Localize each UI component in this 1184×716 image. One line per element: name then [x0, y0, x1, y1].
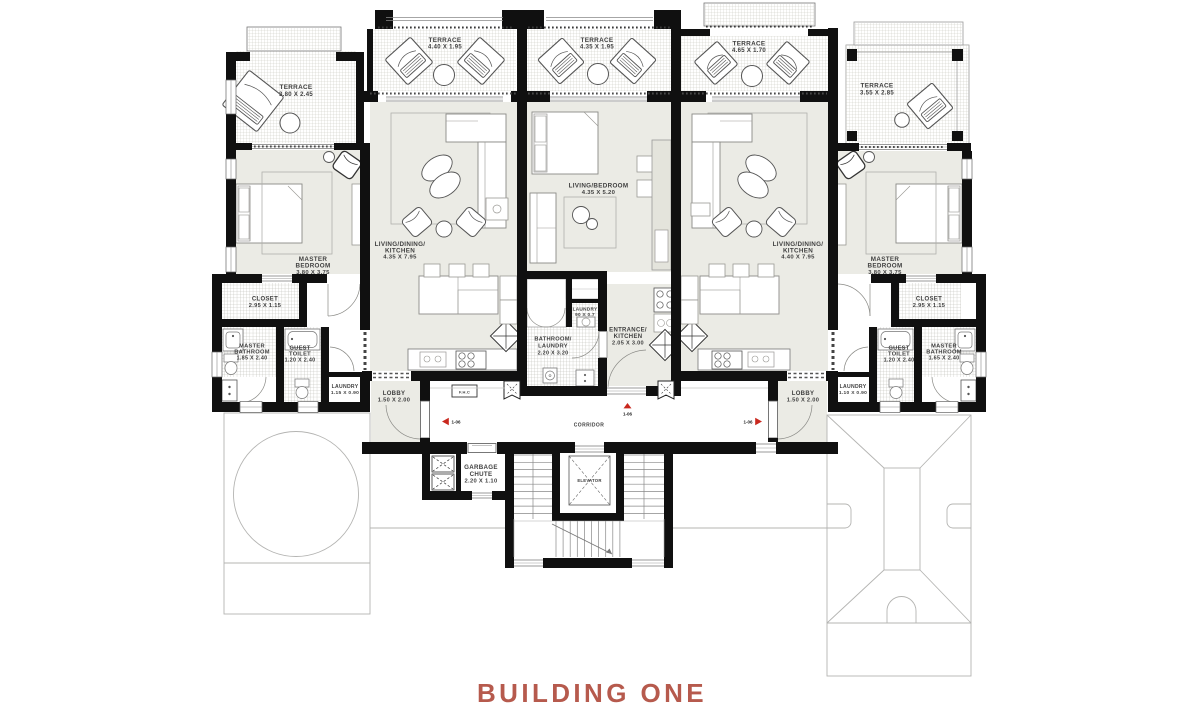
- svg-text:CORRIDOR: CORRIDOR: [574, 423, 604, 429]
- svg-text:1.50 X 2.00: 1.50 X 2.00: [787, 398, 819, 404]
- svg-text:4.35 X 7.95: 4.35 X 7.95: [383, 255, 417, 261]
- svg-text:F.H.C: F.H.C: [459, 390, 470, 395]
- svg-text:2.95 X 1.15: 2.95 X 1.15: [249, 303, 281, 309]
- svg-text:TERRACE: TERRACE: [429, 37, 462, 44]
- svg-text:4.40 X 7.95: 4.40 X 7.95: [781, 255, 815, 261]
- svg-text:2.20 X 3.20: 2.20 X 3.20: [538, 351, 569, 357]
- svg-text:KITCHEN: KITCHEN: [385, 247, 415, 254]
- svg-text:4.40 X 1.95: 4.40 X 1.95: [428, 45, 462, 51]
- svg-text:2.20 X 1.10: 2.20 X 1.10: [465, 479, 498, 485]
- svg-text:1.50 X 2.00: 1.50 X 2.00: [378, 398, 410, 404]
- svg-text:TERRACE: TERRACE: [733, 41, 766, 48]
- svg-text:CHUTE: CHUTE: [470, 471, 493, 478]
- svg-text:2.05 X 3.00: 2.05 X 3.00: [612, 341, 644, 347]
- svg-text:4.35 X 1.95: 4.35 X 1.95: [580, 45, 614, 51]
- svg-text:LAUNDRY: LAUNDRY: [840, 384, 867, 390]
- svg-text:1.10 X 0.90: 1.10 X 0.90: [839, 390, 867, 396]
- svg-text:LAUNDRY: LAUNDRY: [332, 384, 359, 390]
- svg-text:TERRACE: TERRACE: [581, 37, 614, 44]
- svg-text:TERRACE: TERRACE: [861, 83, 894, 90]
- svg-text:1.65 X 2.40: 1.65 X 2.40: [929, 356, 960, 362]
- svg-text:KITCHEN: KITCHEN: [614, 334, 643, 340]
- svg-text:90 X 0.7: 90 X 0.7: [575, 312, 595, 317]
- svg-text:3.80 X 3.75: 3.80 X 3.75: [868, 270, 902, 276]
- svg-text:KITCHEN: KITCHEN: [783, 247, 813, 254]
- svg-text:2.95 X 1.15: 2.95 X 1.15: [913, 303, 945, 309]
- svg-text:LAUNDRY: LAUNDRY: [573, 307, 598, 312]
- svg-text:LOBBY: LOBBY: [792, 391, 815, 397]
- svg-text:1-06: 1-06: [623, 412, 633, 417]
- svg-text:BEDROOM: BEDROOM: [296, 263, 331, 270]
- svg-text:CLOSET: CLOSET: [916, 297, 942, 303]
- svg-text:1-06: 1-06: [451, 420, 461, 425]
- svg-text:GARBAGE: GARBAGE: [464, 464, 498, 471]
- svg-text:BEDROOM: BEDROOM: [868, 263, 903, 270]
- svg-text:ELEVATOR: ELEVATOR: [577, 478, 602, 483]
- svg-text:LOBBY: LOBBY: [383, 391, 406, 397]
- svg-text:3.80 X 3.75: 3.80 X 3.75: [296, 270, 330, 276]
- svg-text:4.35 X 5.20: 4.35 X 5.20: [582, 190, 616, 196]
- svg-text:4.65 X 1.70: 4.65 X 1.70: [732, 48, 766, 54]
- svg-text:CLOSET: CLOSET: [252, 297, 278, 303]
- svg-text:BUILDING ONE: BUILDING ONE: [477, 678, 707, 708]
- svg-text:ENTRANCE/: ENTRANCE/: [609, 328, 647, 334]
- svg-text:LAUNDRY: LAUNDRY: [538, 344, 568, 350]
- svg-text:3.55 X 2.85: 3.55 X 2.85: [860, 91, 894, 97]
- svg-text:1-06: 1-06: [743, 420, 753, 425]
- svg-text:TERRACE: TERRACE: [280, 84, 313, 91]
- svg-text:LIVING/BEDROOM: LIVING/BEDROOM: [569, 183, 629, 190]
- svg-text:3.80 X 2.45: 3.80 X 2.45: [279, 92, 313, 98]
- svg-text:1.20 X 2.40: 1.20 X 2.40: [285, 358, 316, 364]
- svg-text:1.15 X 0.90: 1.15 X 0.90: [331, 390, 359, 396]
- svg-text:BATHROOM/: BATHROOM/: [534, 337, 571, 343]
- svg-text:1.85 X 2.40: 1.85 X 2.40: [237, 356, 268, 362]
- svg-text:1.20 X 2.40: 1.20 X 2.40: [884, 358, 915, 364]
